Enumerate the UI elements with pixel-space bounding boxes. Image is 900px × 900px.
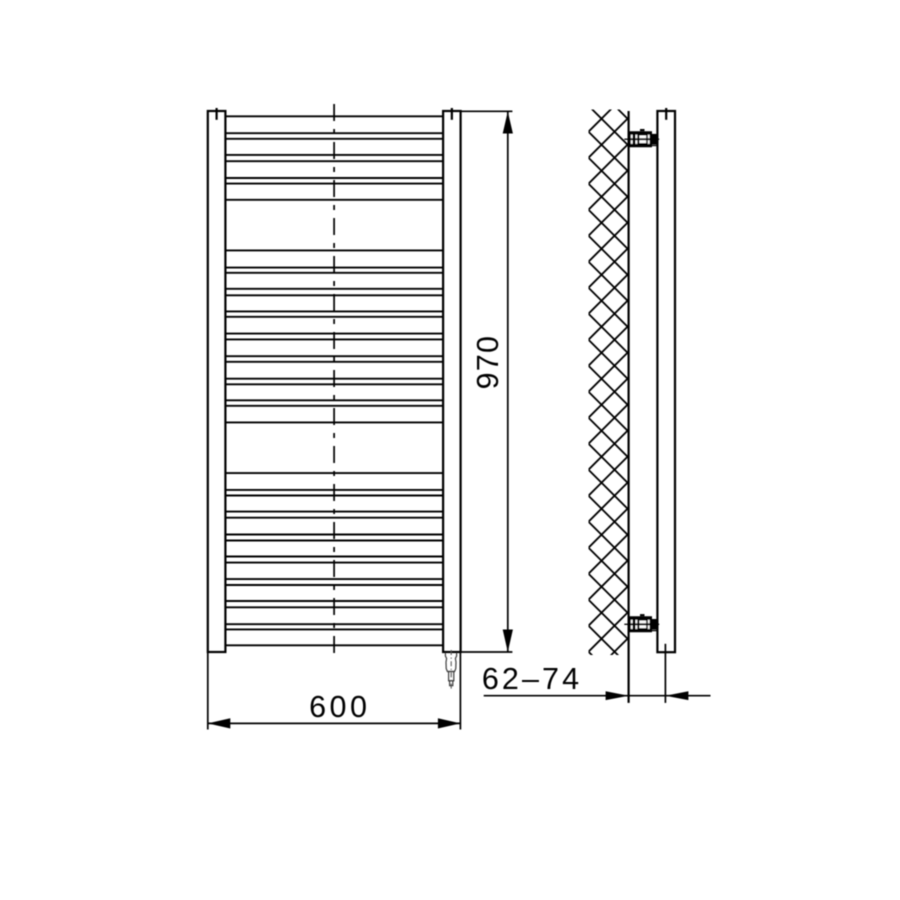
svg-text:600: 600 (309, 690, 370, 724)
svg-text:970: 970 (471, 335, 505, 390)
svg-text:62–74: 62–74 (482, 662, 582, 696)
